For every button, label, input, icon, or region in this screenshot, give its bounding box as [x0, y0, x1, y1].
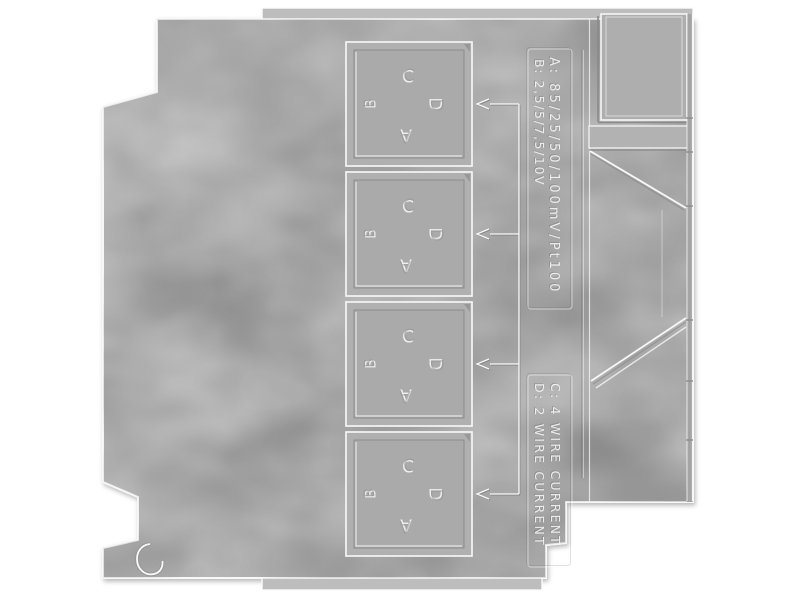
dial-letter-top: C C	[402, 326, 415, 347]
dial-letter-left-text: B	[362, 98, 378, 108]
edge-strip	[687, 14, 693, 502]
dial-letter-top: C C	[402, 196, 415, 217]
legend-line-b: B: 2,5/5/7,5/10V B: 2,5/5/7,5/10V	[531, 58, 547, 186]
legend-line-b-text: B: 2,5/5/7,5/10V	[532, 59, 547, 186]
dial-letter-bottom: A A	[399, 125, 412, 146]
dial-letter-top-text: C	[403, 456, 415, 476]
legend-line-d-text: D: 2 WIRE CURRENT	[532, 383, 547, 547]
dial-letter-bottom-text: A	[399, 386, 411, 406]
dial-letter-left: B B	[362, 228, 379, 239]
dial-letter-right: D D	[425, 227, 446, 241]
legend-line-a-text: A: 85/25/50/100mV/Pt100	[546, 57, 561, 294]
dial-letter-bottom: A A	[399, 385, 412, 406]
dial-letter-right-text: D	[426, 358, 446, 371]
top-right-cover-plate	[601, 14, 687, 120]
dial-letter-right-text: D	[426, 228, 446, 241]
dial-letter-bottom: A A	[399, 255, 412, 276]
dial-letter-left: B B	[362, 488, 379, 499]
dial-letter-bottom: A A	[399, 515, 412, 536]
switch-window-1: C C B B D D A A	[346, 42, 472, 166]
switch-window-3: C C B B D D A A	[346, 302, 472, 426]
dial-letter-right-text: D	[426, 488, 446, 501]
dial-letter-top-text: C	[403, 196, 415, 216]
dial-letter-left-text: B	[362, 488, 378, 498]
switch-window-4: C C B B D D A A	[346, 432, 472, 556]
dial-letter-right: D D	[425, 97, 446, 111]
legend-line-c: C: 4 WIRE CURRENT C: 4 WIRE CURRENT	[547, 382, 563, 546]
panel-render: C C B B D D A A C C B B D D	[0, 0, 800, 600]
dial-letter-right: D D	[425, 357, 446, 371]
dial-letter-bottom-text: A	[399, 516, 411, 536]
legend-line-d: D: 2 WIRE CURRENT D: 2 WIRE CURRENT	[531, 382, 547, 547]
dial-letter-top-text: C	[403, 66, 415, 86]
dial-letter-right: D D	[425, 487, 446, 501]
dial-letter-top: C C	[402, 456, 415, 477]
dial-letter-bottom-text: A	[399, 256, 411, 276]
flange-rib-bar	[589, 126, 689, 148]
bottom-edge-lip	[262, 578, 542, 590]
dial-letter-top: C C	[402, 66, 415, 87]
dial-letter-left: B B	[362, 358, 379, 369]
dial-letter-left: B B	[362, 98, 379, 109]
dial-letter-bottom-text: A	[399, 126, 411, 146]
dial-letter-left-text: B	[362, 228, 378, 238]
dial-letter-top-text: C	[403, 326, 415, 346]
switch-window-2: C C B B D D A A	[346, 172, 472, 296]
legend-line-c-text: C: 4 WIRE CURRENT	[548, 383, 563, 546]
dial-letter-left-text: B	[362, 358, 378, 368]
dial-letter-right-text: D	[426, 98, 446, 111]
legend-wire-modes: C: 4 WIRE CURRENT C: 4 WIRE CURRENT D: 2…	[531, 382, 563, 547]
